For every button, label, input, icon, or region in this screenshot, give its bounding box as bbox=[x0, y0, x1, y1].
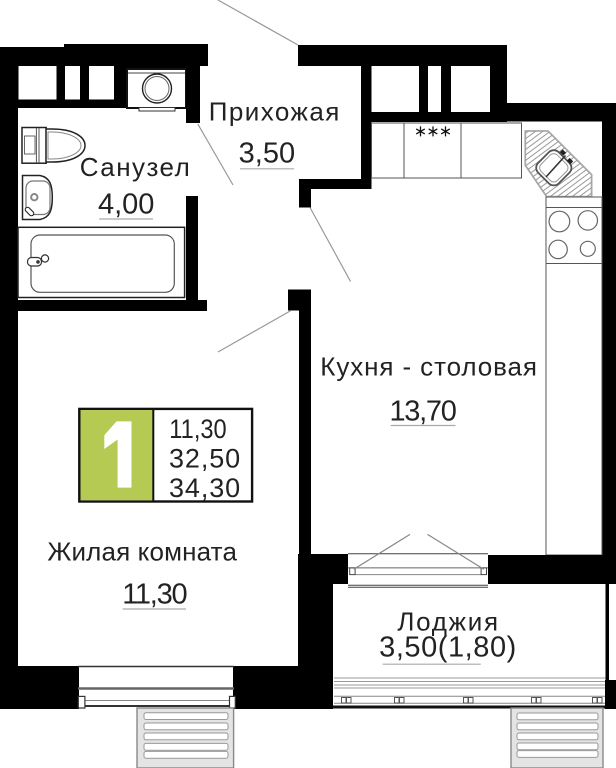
svg-text:Прихожая: Прихожая bbox=[209, 96, 341, 126]
svg-text:3,50: 3,50 bbox=[239, 138, 295, 170]
svg-text:13,70: 13,70 bbox=[389, 396, 455, 428]
svg-text:Санузел: Санузел bbox=[80, 152, 191, 182]
svg-text:11,30: 11,30 bbox=[169, 415, 226, 445]
svg-text:11,30: 11,30 bbox=[122, 578, 186, 610]
svg-text:4,00: 4,00 bbox=[98, 189, 154, 221]
svg-text:3,50(1,80): 3,50(1,80) bbox=[379, 632, 517, 664]
svg-text:34,30: 34,30 bbox=[169, 473, 241, 503]
svg-text:Жилая комната: Жилая комната bbox=[47, 537, 237, 567]
svg-text:32,50: 32,50 bbox=[169, 444, 241, 474]
svg-text:Кухня - столовая: Кухня - столовая bbox=[320, 351, 538, 381]
